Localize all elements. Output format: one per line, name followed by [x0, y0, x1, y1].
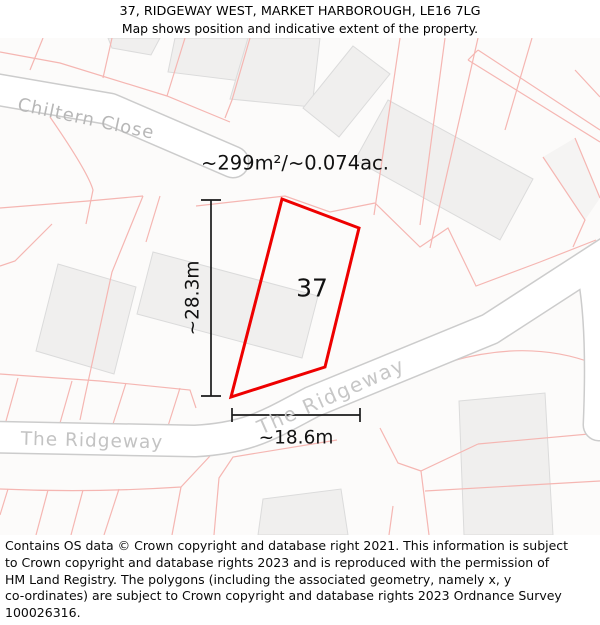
copyright-footer: Contains OS data © Crown copyright and d… [5, 538, 597, 622]
footer-line: HM Land Registry. The polygons (includin… [5, 572, 597, 589]
page-title: 37, RIDGEWAY WEST, MARKET HARBOROUGH, LE… [0, 3, 600, 20]
road-branch [594, 278, 600, 425]
building [459, 393, 553, 535]
map-header: 37, RIDGEWAY WEST, MARKET HARBOROUGH, LE… [0, 3, 600, 37]
page-subtitle: Map shows position and indicative extent… [0, 20, 600, 37]
footer-line: Contains OS data © Crown copyright and d… [5, 538, 597, 555]
map-canvas [0, 38, 600, 535]
property-map-page: { "header": { "title": "37, RIDGEWAY WES… [0, 0, 600, 625]
map-container [0, 38, 600, 535]
footer-line: co-ordinates) are subject to Crown copyr… [5, 588, 597, 605]
footer-line: to Crown copyright and database rights 2… [5, 555, 597, 572]
footer-line: 100026316. [5, 605, 597, 622]
